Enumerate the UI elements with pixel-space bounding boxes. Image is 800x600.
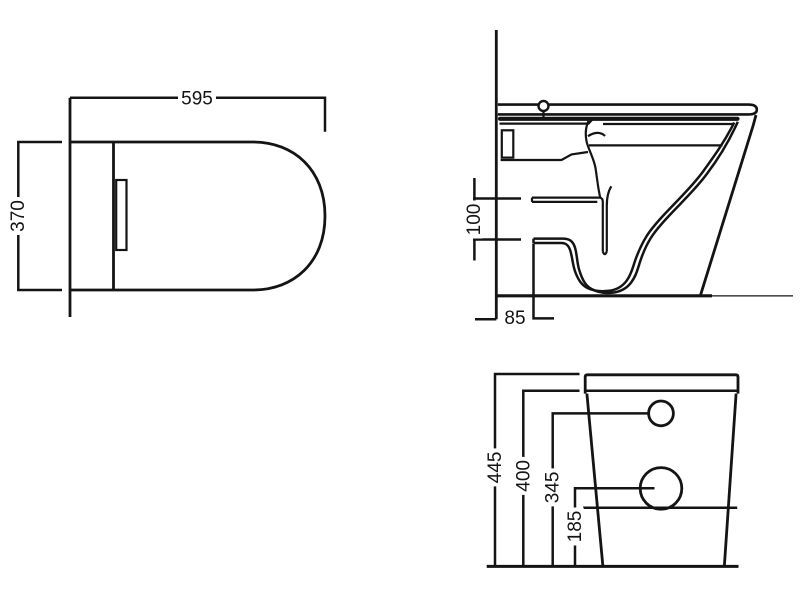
side-trap-inner-line (534, 123, 735, 292)
side-view: 100 85 (464, 30, 794, 329)
dim-100-label-group: 100 (464, 201, 485, 239)
side-jet-channel-right (607, 186, 612, 251)
rear-body-right-side (724, 394, 736, 566)
dim-445-label-group: 445 (485, 448, 506, 486)
side-inlet-hook-line (588, 133, 605, 136)
rear-view: 445 400 345 185 (485, 374, 739, 566)
side-jet-channel-tip (603, 252, 607, 255)
technical-drawing-page: 595 370 (0, 0, 800, 600)
dim-185-label-group: 185 (565, 508, 586, 546)
plan-hinge-tab (116, 180, 126, 250)
side-flush-valve-box (502, 130, 514, 157)
dim-370-label-group: 370 (8, 197, 29, 235)
side-trap-outer-line (534, 122, 738, 293)
toilet-dimension-drawing: 595 370 (0, 0, 800, 600)
dim-100-label: 100 (464, 204, 485, 236)
dim-400-label-group: 400 (513, 457, 534, 495)
side-lid-profile (498, 105, 757, 115)
rear-body-left-side (587, 394, 603, 566)
side-outlet-reference-line (534, 244, 555, 319)
side-hinge-knob (539, 101, 549, 111)
dim-345-label: 345 (543, 472, 564, 504)
dim-595-label: 595 (181, 89, 213, 110)
dim-400-label: 400 (513, 460, 534, 492)
plan-view: 595 370 (8, 89, 325, 318)
plan-pan-outline (70, 142, 325, 290)
dim-85-label: 85 (504, 308, 525, 329)
rear-inlet-hole (649, 401, 674, 426)
dim-370-label: 370 (8, 200, 29, 232)
dim-445-label: 445 (485, 452, 506, 484)
dim-345-label-group: 345 (542, 468, 563, 506)
dim-185-label: 185 (565, 511, 586, 543)
